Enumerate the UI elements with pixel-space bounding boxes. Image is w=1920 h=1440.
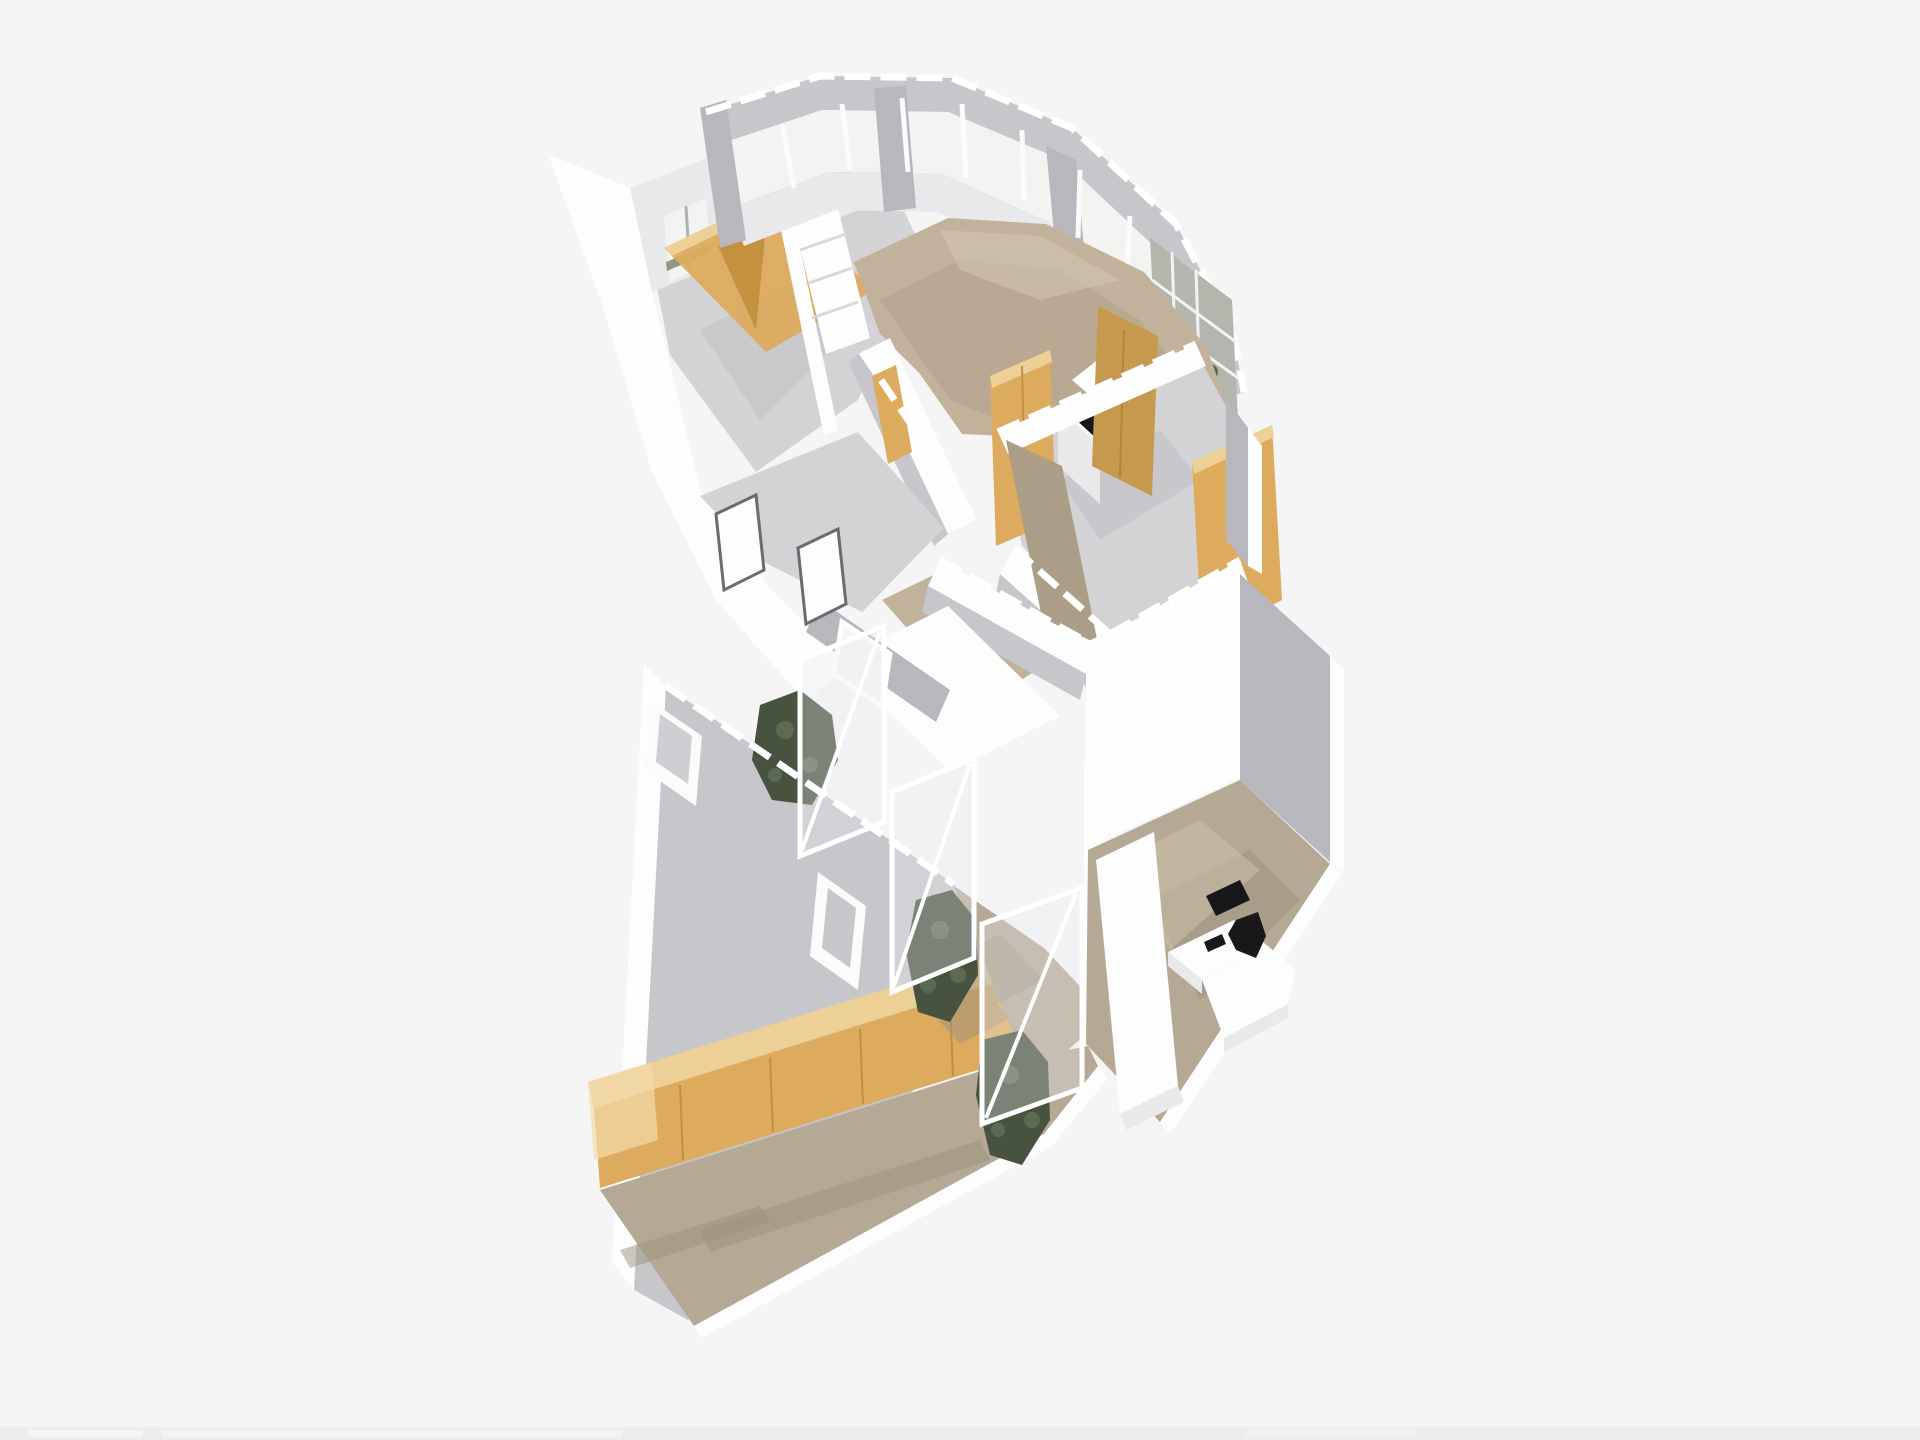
bottom-edge-bar (0, 1427, 1920, 1440)
outer-wall-gray (1226, 398, 1248, 566)
plant-highlight (776, 721, 794, 739)
plant-highlight (991, 1123, 1005, 1137)
office-right-wall-white (1330, 656, 1344, 874)
plant-highlight (1024, 1112, 1040, 1128)
edge-bar-segment (1245, 1430, 1415, 1437)
plant-highlight (768, 768, 782, 782)
edge-bar-segment (162, 1430, 622, 1437)
office (1084, 572, 1344, 1134)
outer-wall-white (1248, 428, 1262, 574)
edge-bar-segment (28, 1430, 143, 1437)
framed-window (798, 529, 846, 624)
floorplan-3d-render (0, 0, 1920, 1440)
floorplan-viewport[interactable] (0, 0, 1920, 1440)
